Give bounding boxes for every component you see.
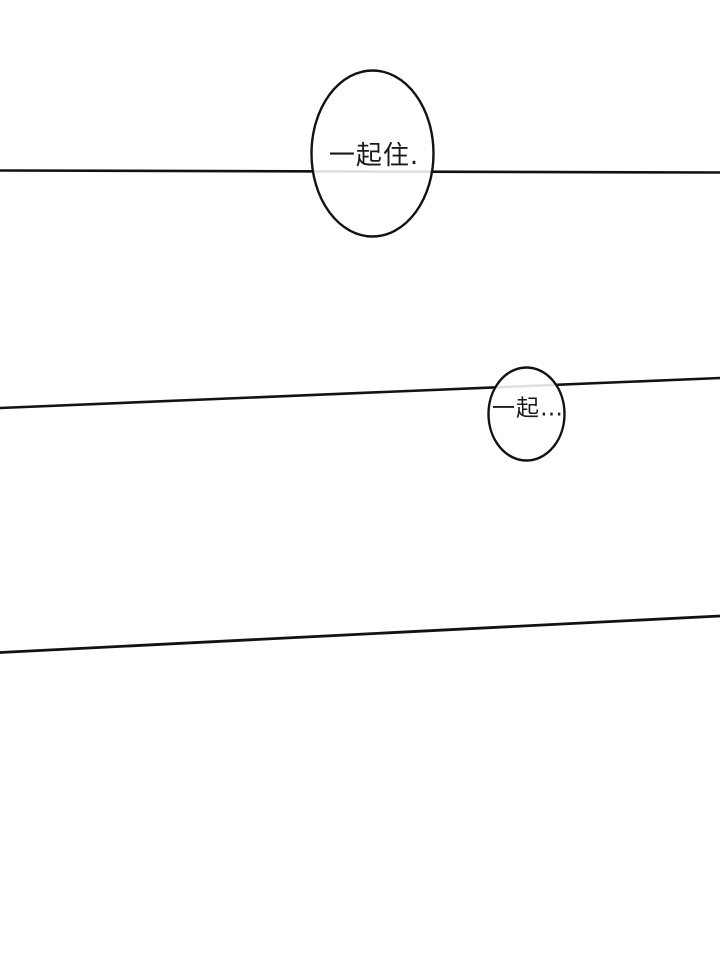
comic-page: 一起住. 一起…: [0, 0, 720, 962]
panel-border-line-middle: [0, 378, 720, 408]
speech-bubble-1-text: 一起住.: [329, 143, 419, 169]
speech-bubble-2-text: 一起…: [492, 398, 564, 421]
panel-border-line-bottom: [0, 616, 720, 653]
